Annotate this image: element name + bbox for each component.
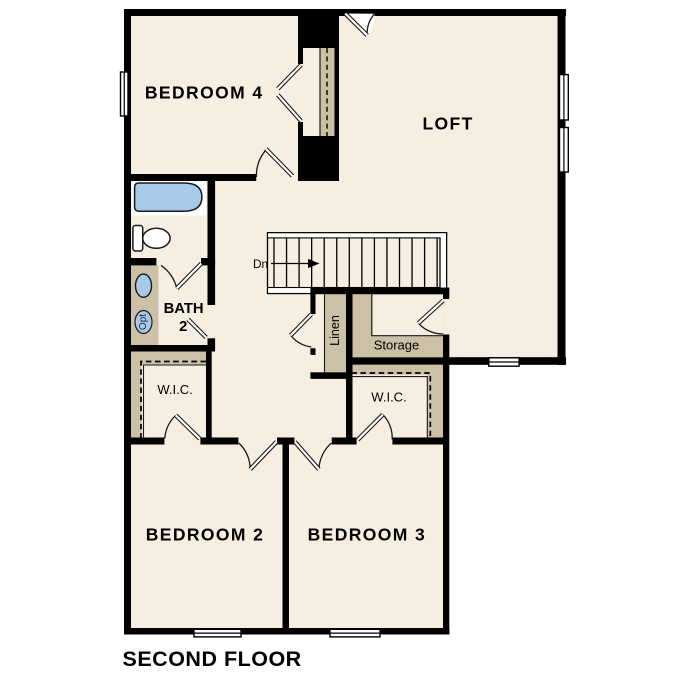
svg-text:W.I.C.: W.I.C.	[371, 390, 406, 405]
svg-text:Storage: Storage	[374, 338, 420, 353]
svg-text:LOFT: LOFT	[422, 114, 473, 134]
svg-text:BATH: BATH	[164, 301, 204, 317]
svg-text:2: 2	[179, 319, 187, 335]
svg-text:BEDROOM 4: BEDROOM 4	[145, 82, 264, 102]
svg-text:SECOND FLOOR: SECOND FLOOR	[123, 647, 302, 671]
svg-text:BEDROOM 2: BEDROOM 2	[146, 524, 265, 544]
svg-text:Linen: Linen	[328, 315, 342, 346]
svg-text:BEDROOM 3: BEDROOM 3	[308, 524, 427, 544]
svg-text:Dn: Dn	[253, 257, 268, 271]
svg-text:Opt: Opt	[138, 314, 149, 330]
svg-text:W.I.C.: W.I.C.	[157, 382, 192, 397]
